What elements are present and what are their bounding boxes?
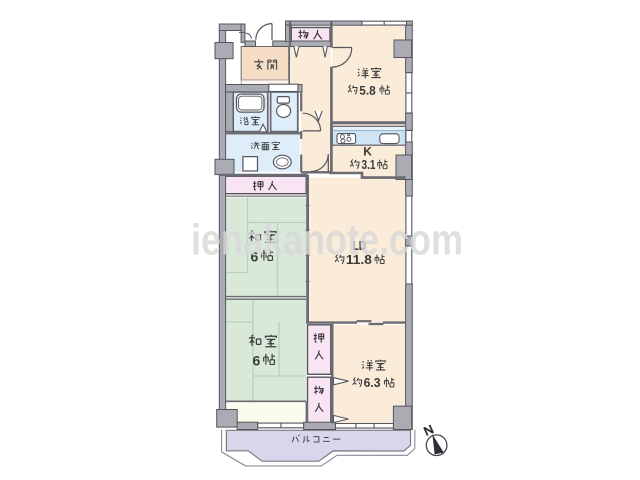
svg-text:K: K [363, 144, 372, 158]
svg-text:3.1: 3.1 [362, 158, 376, 172]
svg-text:6.3: 6.3 [364, 375, 381, 390]
svg-text:ienakanote.com: ienakanote.com [191, 216, 463, 265]
svg-text:6: 6 [253, 353, 261, 369]
svg-text:5.8: 5.8 [359, 84, 376, 98]
